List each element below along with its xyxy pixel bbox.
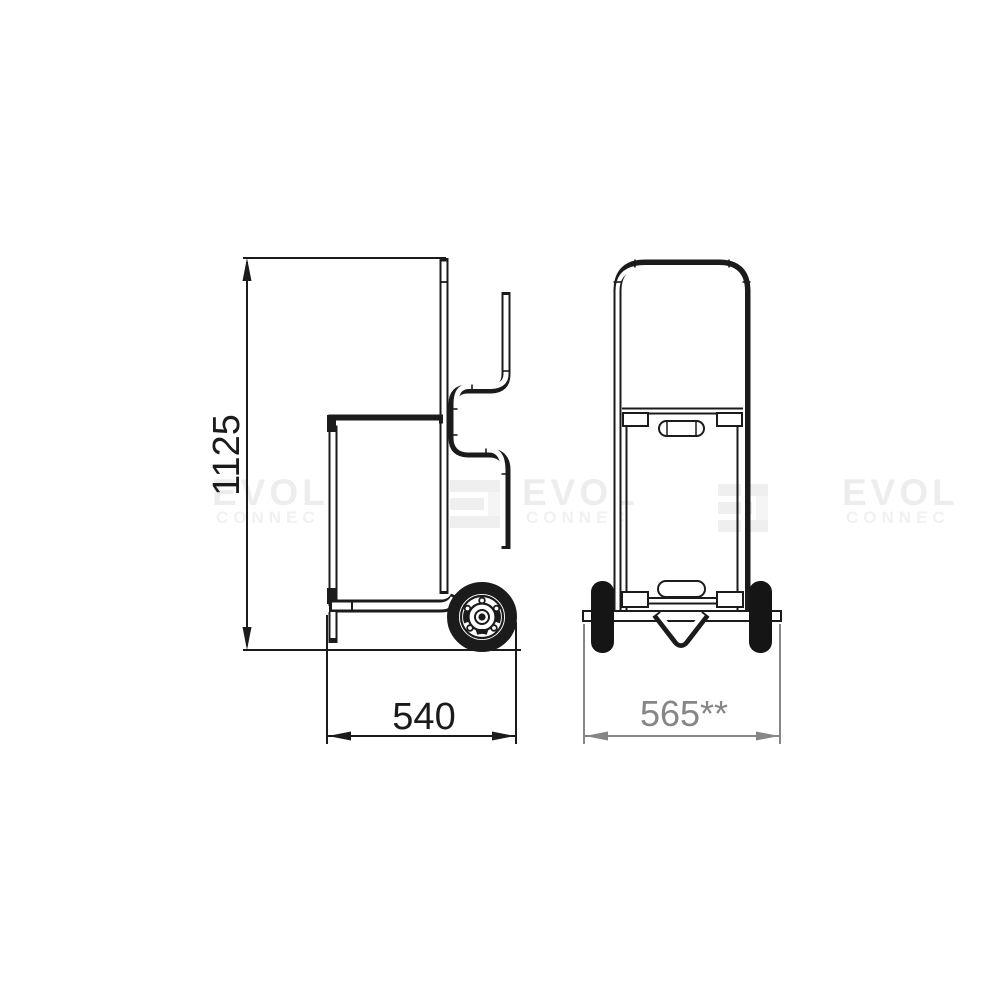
side-hook-tube (449, 292, 511, 549)
side-inner-frame (327, 415, 443, 606)
technical-drawing-page: EVOL CONNEC EVOL CONNEC EVOL CONNEC (0, 0, 1000, 1000)
crossbar-bracket (717, 592, 743, 607)
grip-slot (658, 581, 705, 597)
arrowhead-left (328, 732, 351, 741)
side-wheel (453, 588, 511, 646)
crossbar-bracket (623, 413, 648, 426)
front-wheel-right (749, 581, 772, 653)
width-dimension-label: 565** (640, 693, 728, 734)
height-dimension-label: 1125 (206, 414, 248, 496)
front-lower-crossbar (622, 581, 743, 607)
depth-dimension-label: 540 (392, 696, 455, 738)
arrowhead-down (243, 627, 252, 650)
front-wheel-left (591, 581, 614, 653)
front-view (583, 260, 781, 654)
trolley-two-view-drawing: 1125 540 (0, 0, 1000, 1000)
side-platform (329, 596, 457, 643)
arrowhead-right (492, 732, 515, 741)
arrowhead-up (243, 258, 252, 281)
side-handle-post (440, 258, 449, 594)
crossbar-bracket (622, 592, 648, 607)
grip-slot (659, 421, 704, 436)
corner-bracket (327, 415, 336, 432)
side-view (327, 258, 511, 646)
wheel-axle-dot (478, 613, 485, 620)
arrowhead-right (756, 732, 779, 741)
arrowhead-left (585, 732, 608, 741)
crossbar-bracket (717, 413, 742, 426)
front-upper-crossbar (622, 409, 743, 437)
